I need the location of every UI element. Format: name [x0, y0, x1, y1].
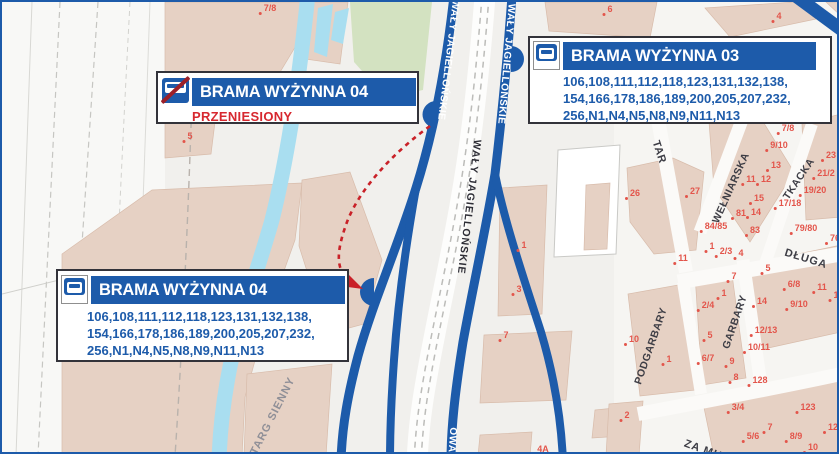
building-number: 4 [776, 11, 781, 21]
building-number: 17/18 [779, 198, 802, 208]
building-number: 7/8 [782, 123, 795, 133]
building-number: 2/4 [702, 300, 715, 310]
building-number: 3/4 [732, 402, 745, 412]
building-number: 10 [808, 442, 818, 452]
route-line: 154,166,178,186,189,200,205,207,232, [563, 90, 791, 107]
building-number: 84/85 [705, 221, 728, 231]
route-list: 106,108,111,112,118,123,131,132,138, 154… [563, 73, 791, 124]
route-line: 256,N1,N4,N5,N8,N9,N11,N13 [563, 107, 791, 124]
building-number: 6/7 [702, 353, 715, 363]
building-number: 5 [187, 131, 192, 141]
callout-old-stop-04: BRAMA WYŻYNNA 04 PRZENIESIONY [156, 71, 419, 124]
building-number: 4 [738, 248, 743, 258]
stop-name-header: BRAMA WYŻYNNA 03 [563, 42, 816, 70]
building-number: 7/8 [264, 3, 277, 13]
building-number: 2/3 [720, 246, 733, 256]
building-number: 1 [721, 288, 726, 298]
building-number: 26 [630, 188, 640, 198]
building-number: 11 [678, 253, 688, 263]
building-number: 8/9 [790, 431, 803, 441]
bus-stop-icon [533, 41, 560, 70]
building-number: 10/11 [748, 342, 770, 352]
building-number: 1 [709, 241, 714, 251]
building-number: 12/13 [755, 325, 778, 335]
building-number: 1 [521, 240, 526, 250]
building-number: 21/2 [817, 168, 835, 178]
building-number: 11 [817, 282, 827, 292]
building-number: 12 [761, 174, 771, 184]
building-number: 123 [800, 402, 815, 412]
transit-relocation-map: BRAMA WYŻYNNA 04 PRZENIESIONY BRAMA WYŻY… [0, 0, 839, 454]
building-number: 4A [537, 444, 549, 454]
building-number: 7 [503, 330, 508, 340]
route-line: 106,108,111,112,118,123,131,132,138, [563, 73, 791, 90]
building-number: 6 [607, 4, 612, 14]
building-number: 5 [707, 330, 712, 340]
building-number: 8 [733, 372, 738, 382]
stop-name-header: BRAMA WYŻYNNA 04 [192, 78, 416, 106]
relocated-status-text: PRZENIESIONY [192, 109, 292, 124]
building-number: 7 [731, 271, 736, 281]
callout-new-stop-04: BRAMA WYŻYNNA 04 106,108,111,112,118,123… [56, 269, 349, 362]
building-number: 10 [629, 334, 639, 344]
stop-marker-03 [511, 46, 524, 72]
bus-stop-crossed-icon [162, 78, 189, 103]
callout-stop-03: BRAMA WYŻYNNA 03 106,108,111,112,118,123… [528, 36, 832, 124]
bus-stop-icon [61, 275, 88, 304]
building-number: 19/20 [804, 185, 827, 195]
building-number: 81 [736, 208, 746, 218]
building-number: 27 [690, 186, 700, 196]
building-number: 6/8 [788, 279, 801, 289]
building-number: 83 [750, 225, 760, 235]
building-number: 5 [765, 263, 770, 273]
route-list: 106,108,111,112,118,123,131,132,138, 154… [87, 308, 315, 359]
building-number: 2 [624, 410, 629, 420]
building-number: 9/10 [790, 299, 808, 309]
white-building [554, 145, 620, 257]
building-number: 9/10 [770, 140, 788, 150]
building-number: 15 [754, 193, 764, 203]
building-number: 7 [767, 422, 772, 432]
building-number: 14 [751, 207, 761, 217]
route-line: 256,N1,N4,N5,N8,N9,N11,N13 [87, 342, 315, 359]
building-number: 76 [830, 233, 839, 243]
building-number: 23 [826, 150, 836, 160]
railway-corridor [414, 2, 489, 454]
building-number: 9 [729, 356, 734, 366]
route-line: 154,166,178,186,189,200,205,207,232, [87, 325, 315, 342]
building-number: 11 [746, 174, 756, 184]
building-number: 1 [833, 290, 838, 300]
route-line: 106,108,111,112,118,123,131,132,138, [87, 308, 315, 325]
building-number: 5/6 [747, 431, 760, 441]
building-number: 1 [666, 354, 671, 364]
stop-marker-old-04 [423, 101, 436, 128]
building-number: 3 [516, 284, 521, 294]
building-number: 128 [752, 375, 767, 385]
building-number: 13 [771, 160, 781, 170]
building-number: 14 [757, 296, 767, 306]
building-number: 79/80 [795, 223, 818, 233]
stop-name-header: BRAMA WYŻYNNA 04 [91, 276, 345, 304]
building-number: 12 [828, 422, 838, 432]
